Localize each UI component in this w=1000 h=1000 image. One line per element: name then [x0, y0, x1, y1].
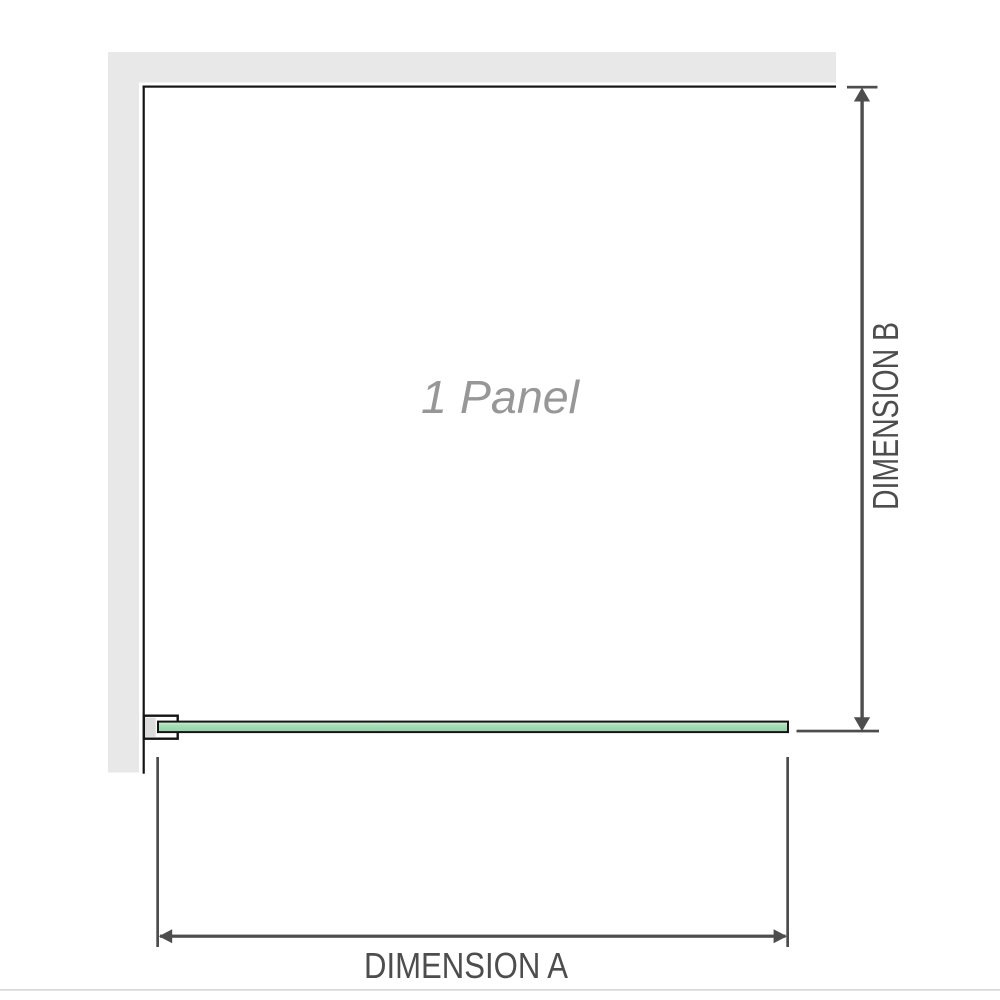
svg-text:DIMENSION B: DIMENSION B [865, 322, 906, 510]
svg-text:1 Panel: 1 Panel [421, 371, 581, 423]
svg-text:DIMENSION A: DIMENSION A [364, 945, 568, 986]
